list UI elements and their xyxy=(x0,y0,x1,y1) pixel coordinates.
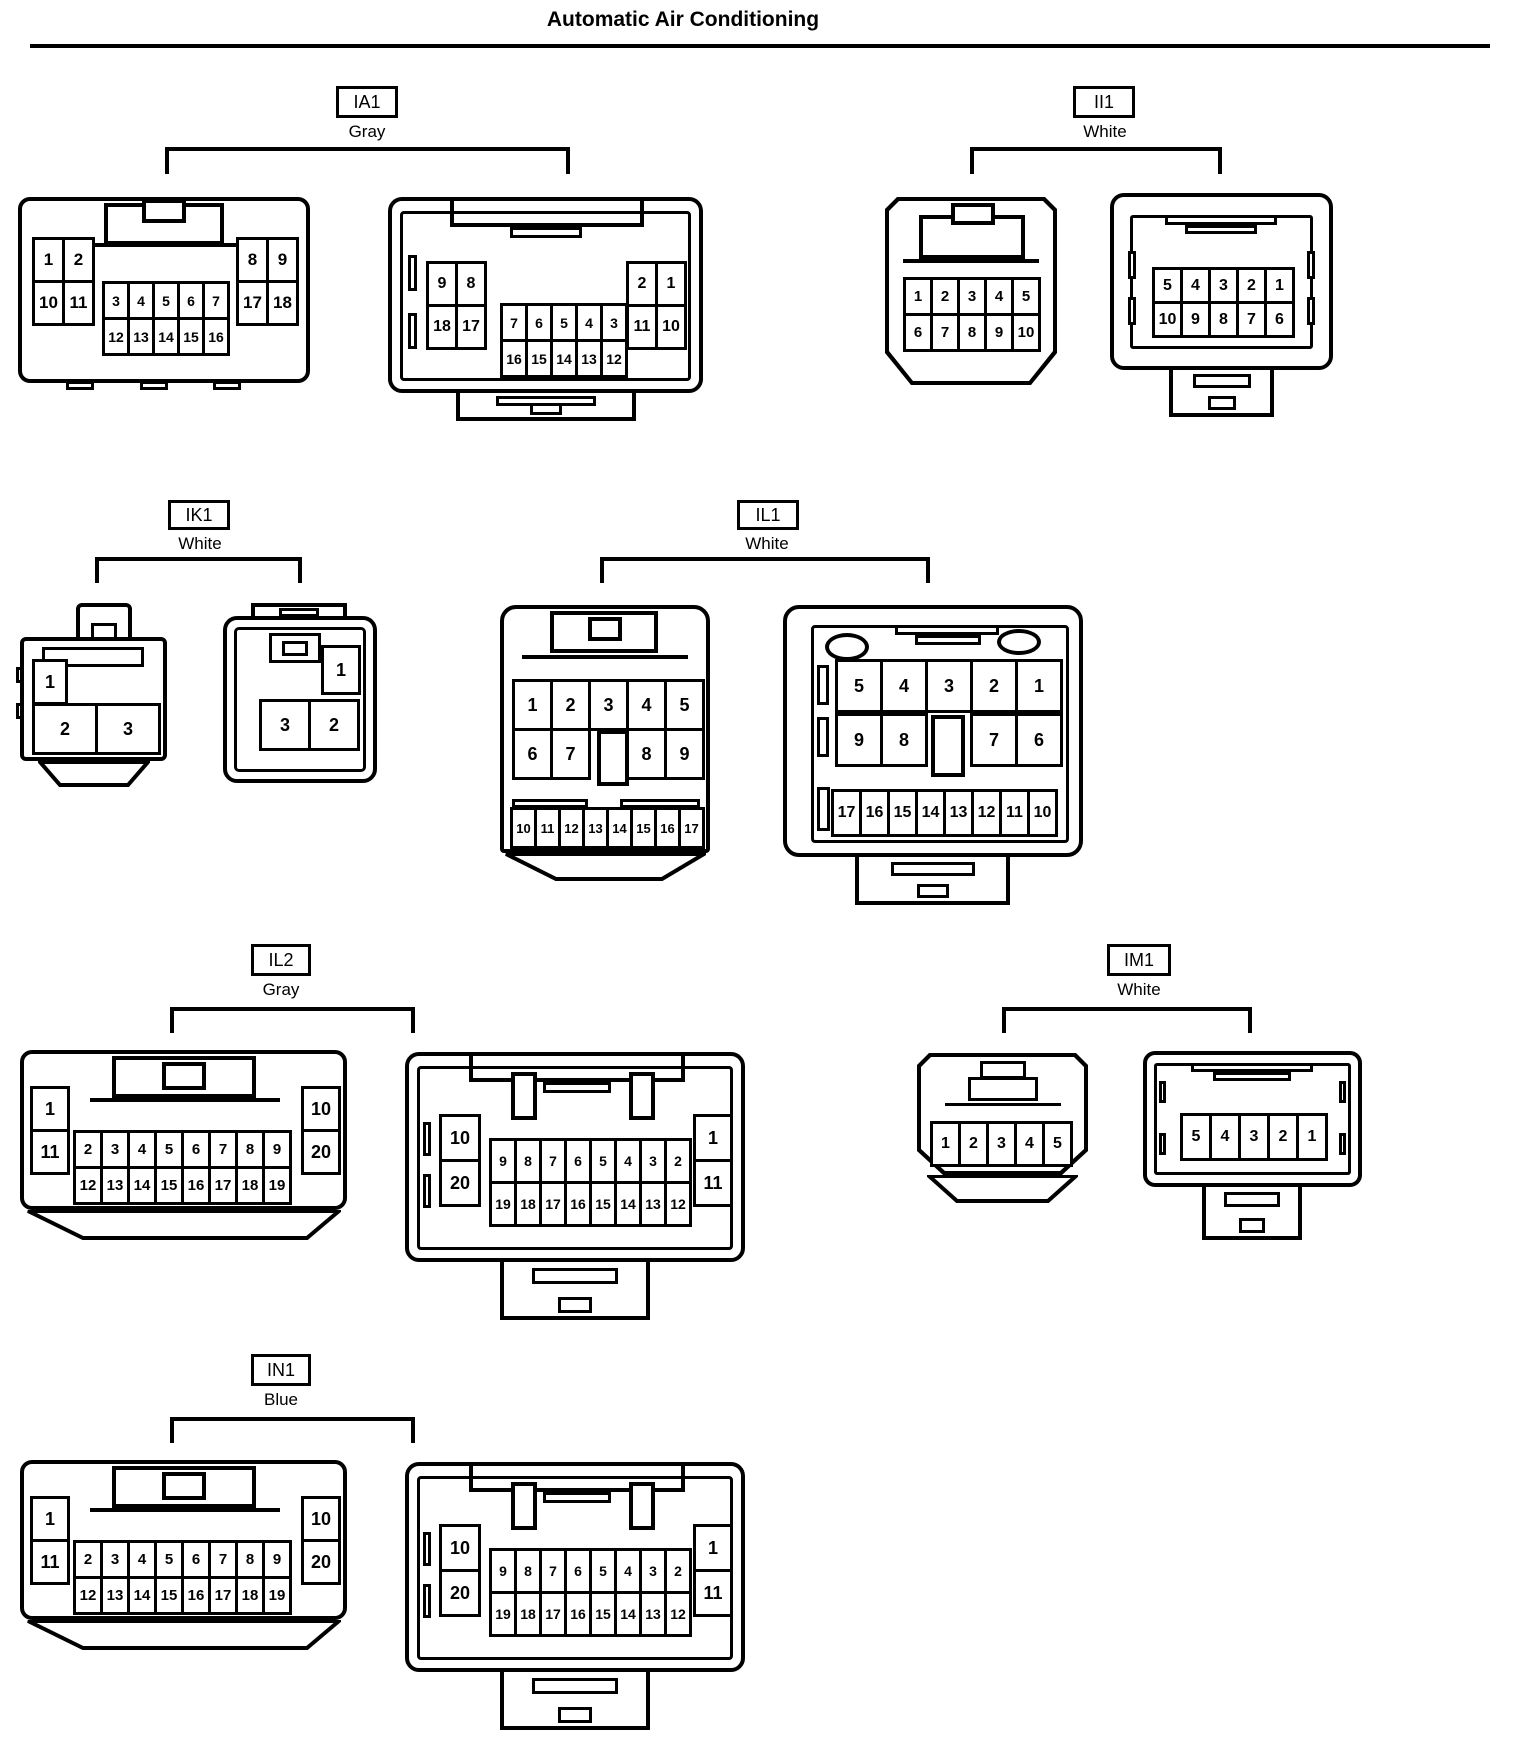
pin-grid: 12345 xyxy=(512,679,705,731)
pin-grid: 891718 xyxy=(236,237,299,326)
lock-tab-detail xyxy=(558,1297,592,1313)
pin-cell: 15 xyxy=(528,342,550,375)
pin-cell: 14 xyxy=(609,810,630,846)
pin-cell: 20 xyxy=(442,1572,478,1614)
pin-cell: 5 xyxy=(157,1543,181,1576)
pin-cell: 10 xyxy=(658,307,684,347)
wall-notch xyxy=(1159,1133,1166,1155)
pin-cell: 7 xyxy=(205,284,227,317)
pin-cell: 9 xyxy=(987,316,1011,349)
pin-cell: 4 xyxy=(617,1551,639,1591)
pin-grid: 211110 xyxy=(626,261,687,350)
pin-grid: 981817 xyxy=(426,261,487,350)
latch-crossbar xyxy=(522,655,688,659)
pin-cell: 6 xyxy=(184,1543,208,1576)
key-slot xyxy=(282,641,308,656)
pin-cell: 2 xyxy=(76,1543,100,1576)
wall-notch xyxy=(423,1122,431,1156)
wall-notch xyxy=(1307,251,1315,279)
pin-cell: 8 xyxy=(238,1133,262,1166)
pin-cell: 3 xyxy=(1241,1116,1267,1158)
wall-notch xyxy=(1128,297,1136,325)
pin-cell: 16 xyxy=(862,792,887,834)
lock-tab-detail xyxy=(532,1678,618,1694)
pin-cell: 12 xyxy=(667,1594,689,1634)
pin-cell: 13 xyxy=(642,1594,664,1634)
bracket xyxy=(95,557,302,583)
pin-cell: 4 xyxy=(987,280,1011,313)
mount-notch xyxy=(213,381,241,390)
bracket xyxy=(170,1417,415,1443)
pin-cell: 14 xyxy=(617,1184,639,1224)
pin-cell: 12 xyxy=(561,810,582,846)
pin-cell: 14 xyxy=(617,1594,639,1634)
im1-female-connector: 12345 xyxy=(917,1053,1088,1203)
pin-cell: 16 xyxy=(205,320,227,353)
pin-cell: 4 xyxy=(617,1141,639,1181)
pin-cell: 19 xyxy=(265,1169,289,1202)
pin-cell: 11 xyxy=(65,283,92,323)
pin-cell: 10 xyxy=(304,1089,338,1129)
pin-grid: 1011121314151617 xyxy=(510,807,705,849)
pin-cell: 1 xyxy=(35,240,62,280)
pin-cell: 5 xyxy=(1014,280,1038,313)
pin-cell: 3 xyxy=(642,1551,664,1591)
pin-cell: 17 xyxy=(681,810,702,846)
pin-cell: 14 xyxy=(130,1579,154,1612)
pin-cell: 4 xyxy=(629,682,664,728)
pin-cell: 13 xyxy=(946,792,971,834)
pin-cell: 4 xyxy=(130,1543,154,1576)
pin-cell: 3 xyxy=(105,284,127,317)
pin-grid: 98 xyxy=(835,713,928,767)
oval-hole xyxy=(825,633,869,661)
pin-cell: 14 xyxy=(130,1169,154,1202)
pin-grid: 1020 xyxy=(439,1114,481,1207)
pin-grid: 54321 xyxy=(1180,1113,1328,1161)
pin-cell: 10 xyxy=(1014,316,1038,349)
housing-notch xyxy=(543,1082,611,1093)
latch-crossbar xyxy=(903,259,1039,263)
pin-grid: 1020 xyxy=(301,1496,341,1585)
pin-grid: 1 xyxy=(321,645,361,695)
housing-notch xyxy=(1213,1072,1291,1081)
in1-male-connector: 1020 987654321918171615141312 111 xyxy=(405,1462,745,1730)
pin-grid: 12345 xyxy=(930,1121,1073,1167)
bracket xyxy=(170,1007,415,1033)
pin-cell: 4 xyxy=(1212,1116,1238,1158)
pin-cell: 3 xyxy=(98,706,158,752)
pin-cell: 9 xyxy=(492,1551,514,1591)
wall-notch xyxy=(1128,251,1136,279)
pin-cell: 10 xyxy=(513,810,534,846)
pin-cell: 2 xyxy=(65,240,92,280)
pin-cell: 11 xyxy=(537,810,558,846)
housing-slot xyxy=(629,1482,655,1530)
group-label-box: IL1 xyxy=(737,500,799,530)
pin-cell: 4 xyxy=(130,1133,154,1166)
pin-cell: 16 xyxy=(567,1184,589,1224)
pin-cell: 7 xyxy=(542,1551,564,1591)
pin-grid: 54321 xyxy=(835,659,1063,713)
im1-male-connector: 54321 xyxy=(1143,1051,1362,1240)
pin-cell: 20 xyxy=(304,1132,338,1172)
group-color-label: Gray xyxy=(317,122,417,142)
pin-cell: 8 xyxy=(458,264,484,304)
pin-cell: 7 xyxy=(542,1141,564,1181)
pin-cell: 6 xyxy=(184,1133,208,1166)
wall-notch xyxy=(423,1174,431,1208)
wall-notch xyxy=(408,313,417,349)
title-underline xyxy=(30,44,1490,48)
pin-cell: 7 xyxy=(973,716,1015,764)
pin-grid: 1716151413121110 xyxy=(831,789,1058,837)
pin-cell: 12 xyxy=(76,1579,100,1612)
pin-cell: 9 xyxy=(429,264,455,304)
ii1-female-connector: 12345678910 xyxy=(885,197,1057,385)
pin-cell: 20 xyxy=(442,1162,478,1204)
pin-cell: 1 xyxy=(1018,662,1060,710)
pin-cell: 1 xyxy=(33,1089,67,1129)
group-color-label: Gray xyxy=(231,980,331,1000)
pin-cell: 8 xyxy=(517,1551,539,1591)
pin-cell: 16 xyxy=(184,1579,208,1612)
pin-cell: 9 xyxy=(265,1543,289,1576)
pin-grid: 1 xyxy=(32,659,68,705)
pin-grid: 89 xyxy=(626,728,705,780)
lock-tab-detail xyxy=(558,1707,592,1723)
key-slot xyxy=(931,715,965,777)
pin-cell: 11 xyxy=(33,1132,67,1172)
pin-cell: 14 xyxy=(553,342,575,375)
ia1-male-connector: 981817 765431615141312 211110 xyxy=(388,197,703,421)
housing-notch xyxy=(510,227,582,238)
pin-grid: 111 xyxy=(693,1524,733,1617)
pin-cell: 1 xyxy=(515,682,550,728)
latch-crossbar xyxy=(945,1103,1061,1106)
pin-grid: 987654321918171615141312 xyxy=(489,1548,692,1637)
lock-tab-detail xyxy=(891,862,975,876)
pin-cell: 1 xyxy=(324,648,358,692)
pin-cell: 15 xyxy=(157,1169,181,1202)
pin-cell: 5 xyxy=(155,284,177,317)
pin-cell: 6 xyxy=(1267,304,1292,335)
pin-cell: 2 xyxy=(76,1133,100,1166)
pin-cell: 10 xyxy=(442,1527,478,1569)
wall-notch xyxy=(817,717,829,757)
pin-cell: 4 xyxy=(883,662,925,710)
pin-cell: 1 xyxy=(1267,270,1292,301)
pin-cell: 3 xyxy=(1211,270,1236,301)
pin-cell: 3 xyxy=(103,1543,127,1576)
bracket xyxy=(165,147,570,174)
pin-cell: 1 xyxy=(933,1124,958,1164)
group-label-box: IK1 xyxy=(168,500,230,530)
pin-cell: 2 xyxy=(1239,270,1264,301)
bracket xyxy=(1002,1007,1252,1033)
housing-notch xyxy=(915,635,981,645)
pin-cell: 5 xyxy=(1045,1124,1070,1164)
pin-cell: 11 xyxy=(1002,792,1027,834)
pin-cell: 14 xyxy=(918,792,943,834)
pin-cell: 17 xyxy=(211,1579,235,1612)
pin-cell: 13 xyxy=(103,1169,127,1202)
lock-tab-detail xyxy=(530,403,562,415)
latch-crossbar xyxy=(90,1508,280,1512)
pin-grid: 234567891213141516171819 xyxy=(73,1540,292,1615)
pin-cell: 3 xyxy=(591,682,626,728)
pin-cell: 7 xyxy=(1239,304,1264,335)
pin-grid: 67 xyxy=(512,728,591,780)
pin-grid: 54321109876 xyxy=(1152,267,1295,338)
latch-key xyxy=(162,1472,206,1500)
pin-cell: 6 xyxy=(567,1551,589,1591)
housing-slot xyxy=(629,1072,655,1120)
pin-cell: 3 xyxy=(642,1141,664,1181)
ii1-male-connector: 54321109876 xyxy=(1110,193,1333,417)
wall-notch xyxy=(408,255,417,291)
pin-cell: 9 xyxy=(269,240,296,280)
pin-cell: 5 xyxy=(553,306,575,339)
latch-key xyxy=(980,1061,1026,1079)
pin-cell: 15 xyxy=(592,1594,614,1634)
in1-female-connector: 111 234567891213141516171819 1020 xyxy=(20,1460,347,1652)
pin-cell: 3 xyxy=(603,306,625,339)
housing-notch xyxy=(1165,215,1277,225)
pin-cell: 5 xyxy=(667,682,702,728)
bottom-skirt xyxy=(927,1175,1078,1203)
pin-cell: 19 xyxy=(265,1579,289,1612)
lock-tab xyxy=(500,1672,650,1730)
pin-cell: 13 xyxy=(578,342,600,375)
pin-cell: 9 xyxy=(265,1133,289,1166)
pin-cell: 4 xyxy=(1183,270,1208,301)
il2-female-connector: 111 234567891213141516171819 1020 xyxy=(20,1050,347,1242)
oval-hole xyxy=(997,629,1041,655)
pin-cell: 12 xyxy=(105,320,127,353)
pin-cell: 3 xyxy=(262,702,308,748)
group-label-box: IA1 xyxy=(336,86,398,118)
pin-cell: 17 xyxy=(239,283,266,323)
pin-grid: 12345678910 xyxy=(903,277,1041,352)
pin-cell: 8 xyxy=(960,316,984,349)
pin-cell: 18 xyxy=(269,283,296,323)
pin-cell: 17 xyxy=(834,792,859,834)
lock-tab-detail xyxy=(917,884,949,898)
pin-cell: 2 xyxy=(311,702,357,748)
pin-cell: 7 xyxy=(211,1543,235,1576)
housing-notch xyxy=(543,1492,611,1503)
pin-cell: 15 xyxy=(157,1579,181,1612)
pin-grid: 234567891213141516171819 xyxy=(73,1130,292,1205)
il1-female-connector: 12345 67 89 1011121314151617 xyxy=(500,605,710,881)
pin-grid: 987654321918171615141312 xyxy=(489,1138,692,1227)
pin-cell: 16 xyxy=(567,1594,589,1634)
pin-cell: 20 xyxy=(304,1542,338,1582)
lock-tab xyxy=(1169,370,1274,417)
pin-cell: 11 xyxy=(629,307,655,347)
pin-cell: 17 xyxy=(458,307,484,347)
pin-cell: 5 xyxy=(592,1141,614,1181)
mount-notch xyxy=(140,381,168,390)
pin-cell: 13 xyxy=(585,810,606,846)
pin-cell: 8 xyxy=(883,716,925,764)
bottom-skirt xyxy=(26,1210,341,1240)
wall-notch xyxy=(423,1584,431,1618)
pin-grid: 111 xyxy=(30,1086,70,1175)
pin-cell: 18 xyxy=(517,1594,539,1634)
bottom-skirt xyxy=(38,761,150,787)
pin-cell: 2 xyxy=(961,1124,986,1164)
pin-cell: 12 xyxy=(667,1184,689,1224)
wall-notch xyxy=(1307,297,1315,325)
pin-cell: 4 xyxy=(578,306,600,339)
lock-tab xyxy=(456,393,636,421)
pin-cell: 2 xyxy=(553,682,588,728)
pin-cell: 12 xyxy=(603,342,625,375)
pin-cell: 8 xyxy=(517,1141,539,1181)
wiring-diagram-page: Automatic Air Conditioning IA1 Gray 1210… xyxy=(0,0,1520,1744)
pin-grid: 23 xyxy=(32,703,161,755)
key-slot xyxy=(597,730,629,786)
group-color-label: White xyxy=(150,534,250,554)
pin-grid: 111 xyxy=(693,1114,733,1207)
pin-cell: 10 xyxy=(304,1499,338,1539)
pin-cell: 3 xyxy=(960,280,984,313)
pin-cell: 14 xyxy=(155,320,177,353)
pin-cell: 10 xyxy=(1155,304,1180,335)
group-label-box: IM1 xyxy=(1107,944,1171,976)
pin-cell: 9 xyxy=(1183,304,1208,335)
pin-cell: 10 xyxy=(442,1117,478,1159)
pin-cell: 13 xyxy=(103,1579,127,1612)
group-color-label: White xyxy=(1089,980,1189,1000)
wall-notch xyxy=(1159,1081,1166,1103)
pin-cell: 5 xyxy=(157,1133,181,1166)
housing-notch xyxy=(1191,1063,1313,1072)
pin-cell: 4 xyxy=(130,284,152,317)
lock-tab-detail xyxy=(1224,1192,1280,1207)
bottom-skirt xyxy=(504,853,706,881)
pin-cell: 1 xyxy=(696,1527,730,1569)
pin-cell: 17 xyxy=(542,1594,564,1634)
pin-cell: 3 xyxy=(928,662,970,710)
pin-cell: 1 xyxy=(658,264,684,304)
pin-cell: 19 xyxy=(492,1184,514,1224)
lock-tab-detail xyxy=(1239,1218,1265,1233)
pin-cell: 7 xyxy=(503,306,525,339)
pin-cell: 19 xyxy=(492,1594,514,1634)
pin-cell: 13 xyxy=(130,320,152,353)
pin-cell: 6 xyxy=(906,316,930,349)
wall-notch xyxy=(817,665,829,705)
latch xyxy=(968,1077,1038,1101)
latch-crossbar xyxy=(90,1098,280,1102)
lock-tab-detail xyxy=(532,1268,618,1284)
pin-cell: 8 xyxy=(238,1543,262,1576)
pin-cell: 1 xyxy=(35,662,65,702)
pin-cell: 6 xyxy=(515,731,550,777)
bracket xyxy=(970,147,1222,174)
latch-key xyxy=(162,1062,206,1090)
housing-slot xyxy=(511,1072,537,1120)
pin-cell: 9 xyxy=(838,716,880,764)
pin-cell: 8 xyxy=(1211,304,1236,335)
pin-cell: 5 xyxy=(592,1551,614,1591)
wall-notch xyxy=(1339,1081,1346,1103)
pin-cell: 7 xyxy=(211,1133,235,1166)
pin-cell: 11 xyxy=(696,1162,730,1204)
ik1-female-connector: 1 23 xyxy=(20,603,167,787)
pin-grid: 121011 xyxy=(32,237,95,326)
bracket xyxy=(600,557,930,583)
group-label-box: IL2 xyxy=(251,944,311,976)
pin-cell: 2 xyxy=(1270,1116,1296,1158)
pin-cell: 12 xyxy=(974,792,999,834)
pin-grid: 1020 xyxy=(301,1086,341,1175)
pin-cell: 1 xyxy=(906,280,930,313)
il1-male-connector: 54321 98 76 1716151413121110 xyxy=(783,605,1083,905)
pin-cell: 3 xyxy=(989,1124,1014,1164)
housing-notch xyxy=(895,625,999,635)
pin-cell: 1 xyxy=(1299,1116,1325,1158)
pin-cell: 18 xyxy=(238,1579,262,1612)
lock-tab xyxy=(855,857,1010,905)
pin-cell: 6 xyxy=(567,1141,589,1181)
pin-cell: 2 xyxy=(667,1141,689,1181)
pin-cell: 6 xyxy=(528,306,550,339)
latch-key xyxy=(951,203,995,225)
pin-cell: 8 xyxy=(239,240,266,280)
pin-cell: 7 xyxy=(553,731,588,777)
pin-grid: 32 xyxy=(259,699,360,751)
pin-cell: 10 xyxy=(35,283,62,323)
group-color-label: Blue xyxy=(231,1390,331,1410)
pin-cell: 13 xyxy=(642,1184,664,1224)
pin-cell: 2 xyxy=(973,662,1015,710)
pin-cell: 3 xyxy=(103,1133,127,1166)
pin-cell: 12 xyxy=(76,1169,100,1202)
pin-grid: 1020 xyxy=(439,1524,481,1617)
ia1-female-connector: 121011 345671213141516 891718 xyxy=(18,197,310,391)
pin-grid: 111 xyxy=(30,1496,70,1585)
pin-cell: 15 xyxy=(180,320,202,353)
pin-cell: 2 xyxy=(667,1551,689,1591)
pin-cell: 2 xyxy=(933,280,957,313)
lock-tab xyxy=(500,1262,650,1320)
pin-cell: 16 xyxy=(184,1169,208,1202)
pin-cell: 5 xyxy=(838,662,880,710)
pin-cell: 2 xyxy=(35,706,95,752)
pin-cell: 2 xyxy=(629,264,655,304)
ik1-male-connector: 1 32 xyxy=(223,603,377,783)
pin-grid: 345671213141516 xyxy=(102,281,230,356)
pin-grid: 76 xyxy=(970,713,1063,767)
pin-cell: 15 xyxy=(592,1184,614,1224)
lock-tab xyxy=(1202,1187,1302,1240)
wall-notch xyxy=(817,787,830,831)
pin-cell: 11 xyxy=(33,1542,67,1582)
pin-grid: 765431615141312 xyxy=(500,303,628,378)
pin-cell: 17 xyxy=(211,1169,235,1202)
il2-male-connector: 1020 987654321918171615141312 111 xyxy=(405,1052,745,1320)
pin-cell: 5 xyxy=(1183,1116,1209,1158)
pin-cell: 17 xyxy=(542,1184,564,1224)
pin-cell: 10 xyxy=(1030,792,1055,834)
latch-key xyxy=(588,617,622,641)
pin-cell: 8 xyxy=(629,731,664,777)
pin-cell: 1 xyxy=(696,1117,730,1159)
